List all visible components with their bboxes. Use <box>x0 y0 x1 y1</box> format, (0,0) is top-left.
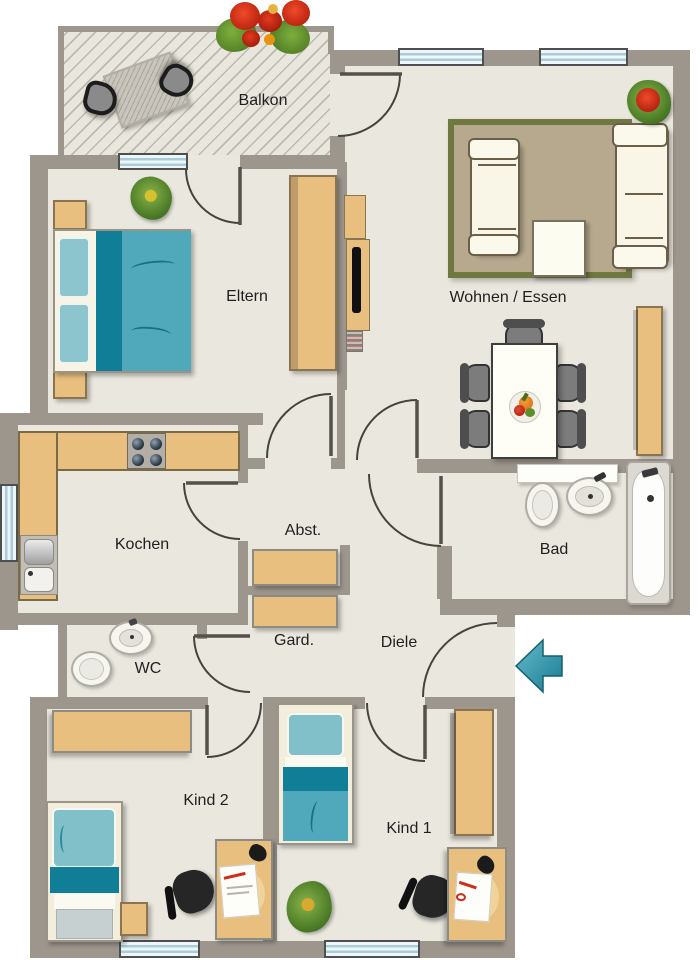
double-bed <box>53 229 191 373</box>
wc-toilet <box>71 651 112 687</box>
window-kind1 <box>324 940 420 958</box>
desk-kind1 <box>447 847 507 942</box>
bed-kind1 <box>277 703 354 845</box>
stereo <box>346 331 363 352</box>
wall-kind1-top-b <box>425 697 515 709</box>
sofa-2-seat <box>470 140 520 254</box>
room-label-eltern: Eltern <box>226 288 268 306</box>
wall-storage-divider <box>243 586 350 595</box>
room-label-bad: Bad <box>540 541 568 559</box>
wall-parents-bottom <box>48 413 263 425</box>
dining-chair-r1 <box>556 364 582 402</box>
wall-kitchen-right-b <box>238 541 248 625</box>
wall-storage-jog-a <box>238 458 265 469</box>
nightstand-1 <box>53 200 87 230</box>
wall-parents-left <box>30 155 48 425</box>
balcony-wall-left <box>58 26 64 162</box>
wall-storage-right <box>340 545 350 595</box>
coat-shelf <box>252 595 338 628</box>
fruit-bowl <box>509 391 541 423</box>
bathtub <box>626 461 671 605</box>
dining-chair-l1 <box>464 364 490 402</box>
window-parents <box>118 153 188 170</box>
room-label-balkon: Balkon <box>239 92 288 110</box>
nightstand-kind2 <box>120 902 148 936</box>
wall-kids-left <box>30 697 47 958</box>
tv-screen <box>352 247 361 313</box>
wall-storage-jog-b <box>331 458 345 469</box>
wall-bath-left <box>437 546 452 599</box>
room-label-kind2: Kind 2 <box>183 792 228 810</box>
stove <box>127 433 166 469</box>
bath-toilet <box>525 482 560 528</box>
bath-sink <box>566 477 613 516</box>
tv-board <box>344 195 366 239</box>
plant-living <box>627 80 671 124</box>
floorplan-canvas: Balkon Eltern Wohnen / Essen Kochen Abst… <box>0 0 700 960</box>
wall-top <box>330 50 690 66</box>
room-label-abst: Abst. <box>285 522 321 540</box>
nightstand-2 <box>53 371 87 399</box>
kitchen-sink <box>20 535 58 595</box>
sideboard-living <box>636 306 663 456</box>
shelf-kind2 <box>52 710 192 753</box>
wardrobe-kind1 <box>454 709 494 836</box>
bed-kind2 <box>46 801 123 942</box>
window-living-2 <box>539 48 628 66</box>
room-label-gard: Gard. <box>274 632 314 650</box>
dining-table <box>491 343 558 459</box>
window-kitchen <box>0 484 18 562</box>
flower-box <box>212 0 312 58</box>
wall-kind2-top <box>30 697 205 709</box>
wall-entry-jamb <box>497 599 515 627</box>
dining-chair-r2 <box>556 410 582 448</box>
room-label-wohnen-essen: Wohnen / Essen <box>449 289 566 307</box>
wall-right <box>673 50 690 615</box>
window-living-1 <box>398 48 484 66</box>
wc-sink <box>109 621 153 655</box>
sofa-3-seat <box>615 125 669 267</box>
room-label-diele: Diele <box>381 634 417 652</box>
desk-kind2 <box>215 839 273 940</box>
room-label-wc: WC <box>135 660 162 678</box>
wardrobe-parents <box>289 175 337 371</box>
wall-living-left-a <box>330 50 345 74</box>
wall-wc-left <box>58 625 67 705</box>
wall-parents-top-b <box>240 155 345 169</box>
wall-stub-center <box>337 390 345 462</box>
coffee-table <box>532 220 586 277</box>
room-label-kochen: Kochen <box>115 536 169 554</box>
dining-chair-l2 <box>464 410 490 448</box>
room-label-kind1: Kind 1 <box>386 820 431 838</box>
storage-shelf <box>252 549 338 586</box>
window-kind2 <box>119 940 200 958</box>
wall-wc-right <box>197 625 207 639</box>
